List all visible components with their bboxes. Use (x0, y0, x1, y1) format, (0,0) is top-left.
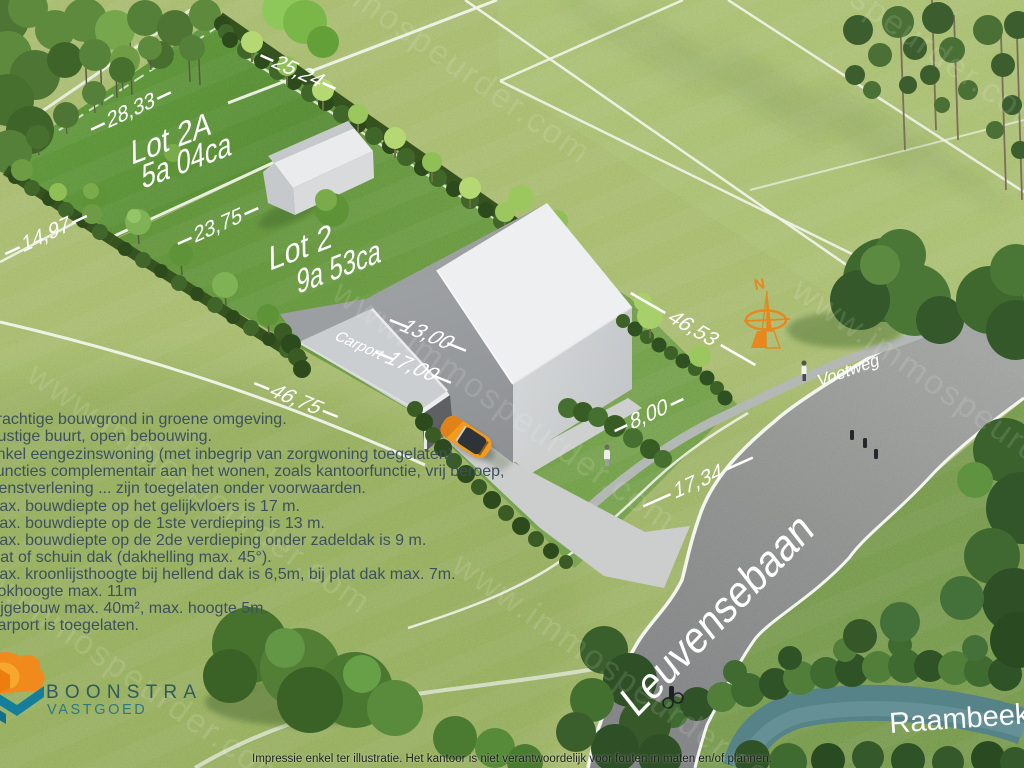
svg-text:dienstverlening ... zijn toege: dienstverlening ... zijn toegelaten onde… (0, 480, 366, 497)
svg-text:Plat of schuin dak (dakhelling: Plat of schuin dak (dakhelling max. 45°)… (0, 549, 272, 566)
svg-text:Max. bouwdiepte op de 1ste ver: Max. bouwdiepte op de 1ste verdieping is… (0, 515, 325, 532)
svg-text:Max. bouwdiepte op het gelijkv: Max. bouwdiepte op het gelijkvloers is 1… (0, 498, 300, 515)
svg-text:Nokhoogte max. 11m: Nokhoogte max. 11m (0, 583, 137, 600)
svg-text:Rustige buurt, open bebouwing.: Rustige buurt, open bebouwing. (0, 428, 212, 445)
svg-text:BOONSTRA: BOONSTRA (46, 682, 202, 703)
svg-text:Carport is toegelaten.: Carport is toegelaten. (0, 617, 139, 634)
svg-text:Impressie enkel ter illustrati: Impressie enkel ter illustratie. Het kan… (252, 753, 772, 765)
svg-text:Prachtige bouwgrond in groene: Prachtige bouwgrond in groene omgeving. (0, 411, 287, 428)
svg-text:VASTGOED: VASTGOED (47, 702, 147, 718)
svg-text:Enkel eengezinswoning (met inb: Enkel eengezinswoning (met inbegrip van … (0, 446, 457, 463)
svg-text:Bijgebouw max. 40m², max. hoog: Bijgebouw max. 40m², max. hoogte 5m. (0, 600, 268, 617)
svg-text:Functies complementair aan het: Functies complementair aan het wonen, zo… (0, 463, 505, 480)
svg-text:Max. kroonlijsthoogte bij hell: Max. kroonlijsthoogte bij hellend dak is… (0, 566, 456, 583)
svg-text:Max. bouwdiepte op de 2de verd: Max. bouwdiepte op de 2de verdieping ond… (0, 532, 426, 549)
